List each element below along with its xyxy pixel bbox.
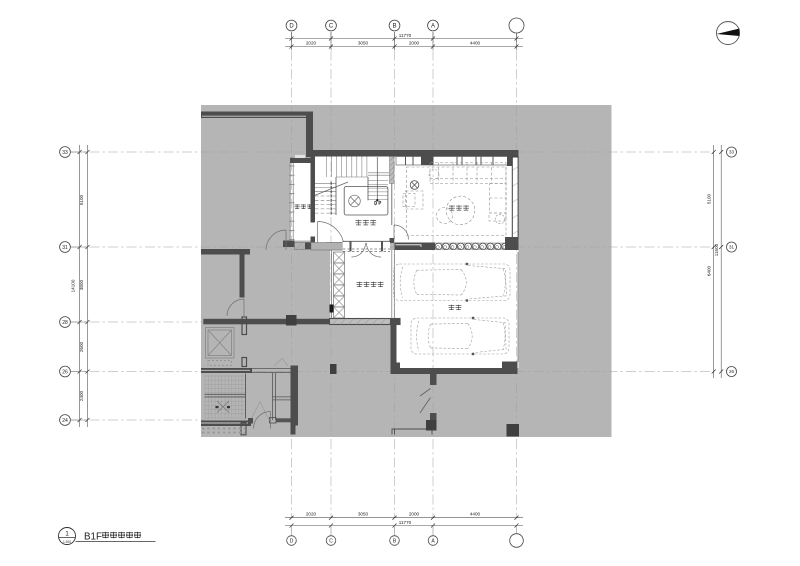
svg-text:24: 24 bbox=[62, 418, 68, 424]
svg-text:C: C bbox=[329, 24, 334, 30]
svg-text:26: 26 bbox=[729, 369, 735, 374]
svg-text:A: A bbox=[431, 24, 435, 30]
svg-text:4400: 4400 bbox=[470, 41, 481, 46]
svg-text:6400: 6400 bbox=[707, 265, 712, 276]
svg-text:33: 33 bbox=[729, 150, 735, 155]
svg-text:3800: 3800 bbox=[79, 279, 84, 290]
svg-text:4400: 4400 bbox=[470, 512, 481, 517]
svg-text:11770: 11770 bbox=[399, 520, 412, 525]
svg-text:33: 33 bbox=[62, 150, 68, 156]
svg-text:14100: 14100 bbox=[71, 279, 76, 292]
svg-text:11770: 11770 bbox=[399, 33, 412, 38]
svg-text:2400: 2400 bbox=[79, 390, 84, 401]
svg-text:2020: 2020 bbox=[306, 41, 317, 46]
svg-text:26: 26 bbox=[62, 369, 68, 375]
svg-text:3050: 3050 bbox=[358, 512, 369, 517]
svg-text:2000: 2000 bbox=[409, 41, 420, 46]
svg-text:2600: 2600 bbox=[79, 341, 84, 352]
svg-text:31: 31 bbox=[729, 245, 735, 250]
svg-text:5100: 5100 bbox=[79, 194, 84, 205]
svg-text:31: 31 bbox=[62, 245, 68, 251]
svg-text:11500: 11500 bbox=[714, 243, 719, 256]
svg-text:2000: 2000 bbox=[409, 512, 420, 517]
svg-text:1: 1 bbox=[65, 531, 69, 538]
svg-text:C: C bbox=[329, 539, 333, 545]
svg-text:3050: 3050 bbox=[358, 41, 369, 46]
svg-text:5100: 5100 bbox=[707, 193, 712, 204]
svg-text:28: 28 bbox=[62, 320, 68, 326]
svg-text:D: D bbox=[289, 24, 294, 30]
svg-text:B1F: B1F bbox=[84, 532, 102, 543]
svg-text:2020: 2020 bbox=[306, 512, 317, 517]
svg-text:1:100: 1:100 bbox=[63, 540, 71, 544]
svg-text:D: D bbox=[290, 539, 294, 545]
svg-text:B: B bbox=[392, 24, 396, 30]
